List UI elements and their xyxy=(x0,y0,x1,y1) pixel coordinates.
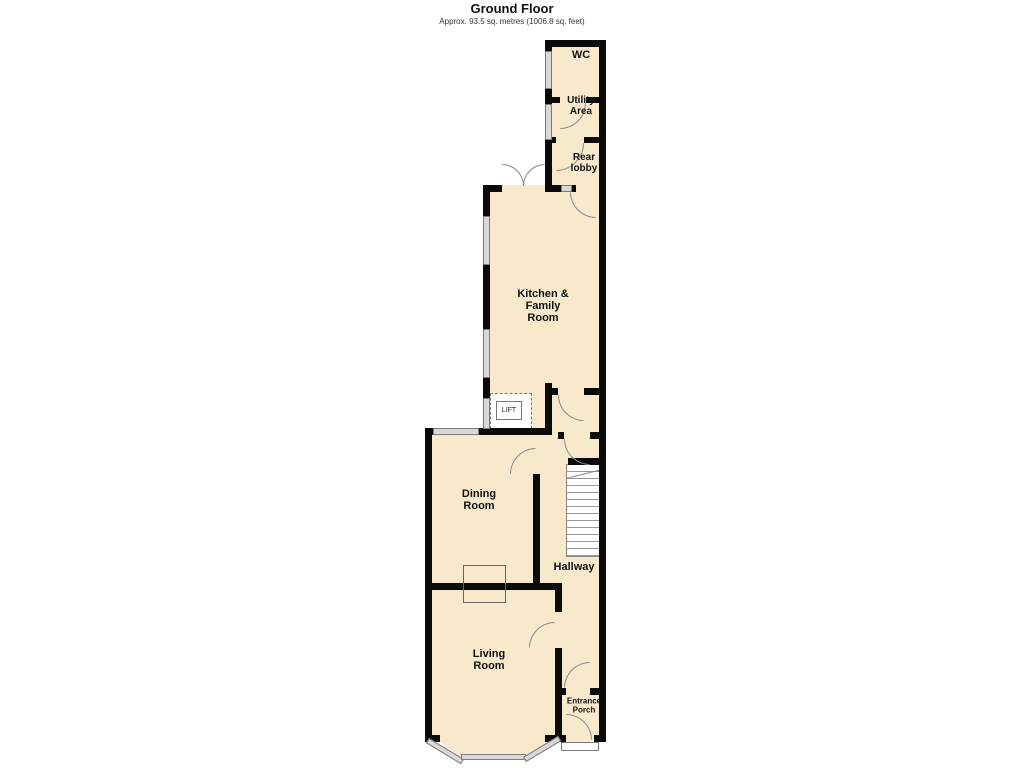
double-door-arc-left xyxy=(502,164,524,186)
wall xyxy=(558,432,564,439)
room-label-hallway: Hallway xyxy=(554,562,595,574)
window xyxy=(483,398,490,429)
wall xyxy=(555,648,562,742)
wall xyxy=(545,40,606,47)
room-label-dining: Dining Room xyxy=(462,489,496,513)
window xyxy=(483,329,490,378)
room-label-rear-lobby: Rear lobby xyxy=(571,153,598,175)
page-subtitle: Approx. 93.5 sq. metres (1006.8 sq. feet… xyxy=(0,17,1024,26)
fireplace-outline xyxy=(463,565,506,603)
room-label-wc: WC xyxy=(572,50,590,62)
window xyxy=(545,51,552,89)
lift-label: LIFT xyxy=(502,407,516,414)
wall xyxy=(552,388,558,395)
double-door-arc-right xyxy=(523,164,545,186)
wall xyxy=(599,40,606,742)
wall xyxy=(555,583,562,612)
door-threshold xyxy=(561,742,599,751)
wall xyxy=(562,688,566,695)
wall xyxy=(425,428,432,742)
window xyxy=(561,185,572,192)
wall xyxy=(533,474,540,586)
window xyxy=(545,104,552,140)
wall xyxy=(584,388,599,395)
room-label-living: Living Room xyxy=(473,649,505,673)
page-title: Ground Floor xyxy=(0,1,1024,16)
wall xyxy=(584,137,599,143)
room-label-porch: Entrance Porch xyxy=(567,697,601,714)
room-label-utility: Utility Area xyxy=(567,96,595,118)
bay-window-center xyxy=(461,754,526,760)
window xyxy=(433,428,479,435)
wall xyxy=(590,688,599,695)
wall xyxy=(552,97,560,103)
wall xyxy=(594,735,606,742)
floor-plan: Ground Floor Approx. 93.5 sq. metres (10… xyxy=(0,0,1024,768)
staircase xyxy=(566,464,600,557)
lift-cab: LIFT xyxy=(496,401,522,420)
wall xyxy=(590,432,599,439)
wall xyxy=(545,383,552,435)
window xyxy=(483,216,490,265)
room-label-kitchen: Kitchen & Family Room xyxy=(517,289,568,325)
